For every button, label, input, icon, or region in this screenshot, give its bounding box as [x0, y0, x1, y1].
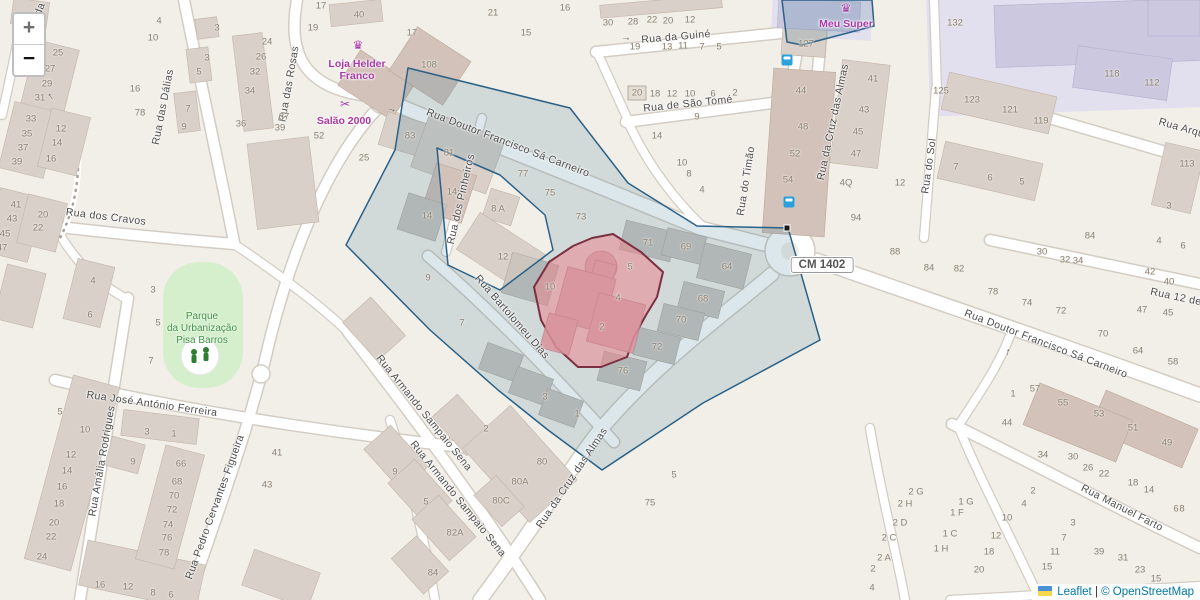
attribution-separator: | [1092, 586, 1101, 598]
turning-circle [252, 365, 270, 383]
zoom-out-button[interactable]: − [14, 45, 44, 75]
zoom-control: + − [12, 12, 46, 77]
map-canvas [0, 0, 1200, 600]
leaflet-link[interactable]: Leaflet [1057, 586, 1092, 598]
leaflet-map[interactable]: Rua das DáliasRua das RosasRua dos Cravo… [0, 0, 1200, 600]
attribution-bar: Leaflet | © OpenStreetMap [1032, 584, 1200, 600]
osm-link[interactable]: © OpenStreetMap [1101, 586, 1194, 598]
zoom-in-button[interactable]: + [14, 14, 44, 45]
bus-stop-icon [782, 55, 793, 66]
ukraine-flag-icon [1038, 586, 1052, 596]
playground-icon [181, 337, 219, 375]
road-shield: CM 1402 [791, 257, 854, 273]
polygon-vertex-dot[interactable] [784, 225, 791, 232]
bus-stop-icon [784, 197, 795, 208]
